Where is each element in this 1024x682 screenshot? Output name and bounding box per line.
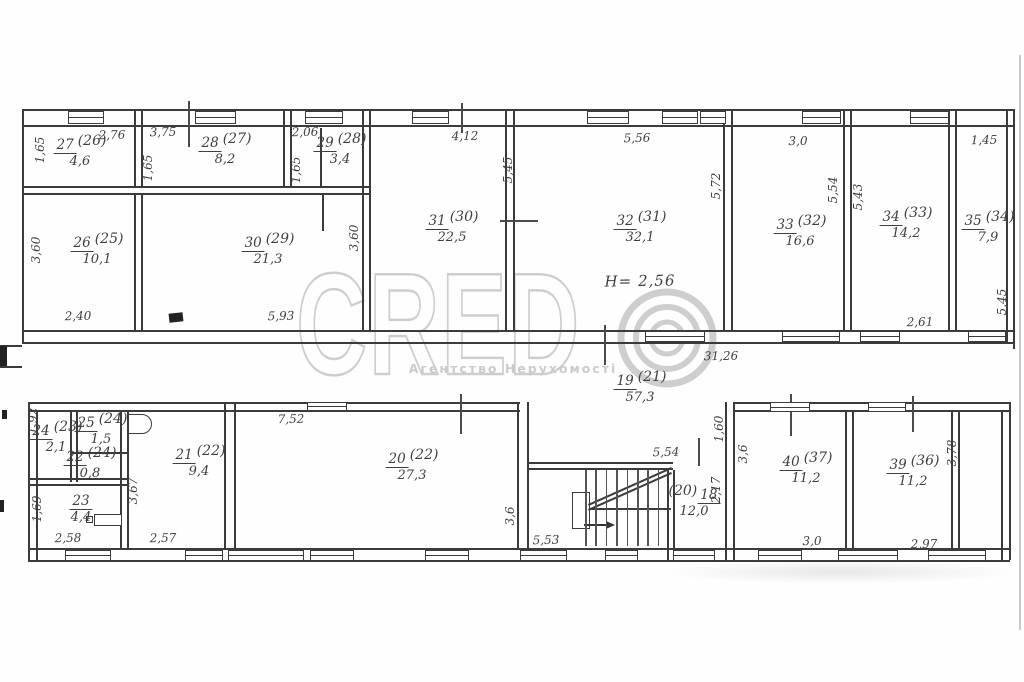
room-label: 29(28)3,4 bbox=[314, 136, 367, 167]
stair-tread bbox=[647, 470, 649, 546]
window-symbol bbox=[605, 550, 638, 561]
dimension-label: 1,69 bbox=[30, 496, 44, 523]
scan-artifact bbox=[0, 346, 7, 366]
wall-segment bbox=[322, 193, 324, 231]
room-number: 26 bbox=[71, 236, 94, 252]
room-label: 27(26)4,6 bbox=[54, 138, 107, 169]
watermark-subtitle: Агентство Нерухомості bbox=[408, 361, 618, 376]
room-old-number: (30) bbox=[450, 210, 479, 225]
dimension-label: 4,12 bbox=[452, 129, 479, 143]
room-number: 27 bbox=[54, 138, 77, 154]
dimension-label: 3,60 bbox=[29, 237, 43, 264]
wall-segment bbox=[22, 342, 1014, 344]
dimension-label: 2,06 bbox=[292, 125, 319, 139]
stair-diagonal bbox=[588, 472, 672, 511]
dimension-label: 3,60 bbox=[347, 225, 361, 252]
stair-tread bbox=[616, 470, 618, 546]
tick-mark bbox=[912, 396, 914, 432]
wall-segment bbox=[22, 186, 370, 188]
dimension-label: 3,0 bbox=[788, 134, 807, 148]
room-label: 26(25)10,1 bbox=[71, 236, 124, 267]
room-label: 30(29)21,3 bbox=[242, 236, 295, 267]
dimension-label: 1,92 bbox=[26, 408, 40, 435]
window-symbol bbox=[928, 550, 986, 561]
wall-segment bbox=[852, 410, 854, 550]
room-area: 16,6 bbox=[774, 235, 827, 249]
room-area: 11,2 bbox=[887, 475, 940, 489]
dimension-label: 1,65 bbox=[289, 157, 303, 184]
room-label: 32(31)32,1 bbox=[614, 214, 667, 245]
dimension-label: 5,54 bbox=[826, 177, 840, 204]
dimension-label: 2,40 bbox=[65, 309, 92, 323]
scan-edge-line bbox=[1019, 55, 1021, 630]
window-symbol bbox=[868, 402, 906, 412]
room-old-number: (21) bbox=[638, 370, 667, 385]
stair-tread bbox=[595, 470, 597, 546]
room-area: 27,3 bbox=[386, 469, 439, 483]
window-symbol bbox=[305, 111, 343, 124]
room-number: 22 bbox=[64, 450, 87, 466]
room-old-number: (34) bbox=[986, 210, 1015, 225]
scan-smudge bbox=[660, 560, 1020, 584]
dimension-label: 5,43 bbox=[851, 184, 865, 211]
room-number: 28 bbox=[199, 136, 222, 152]
window-symbol bbox=[65, 550, 111, 561]
room-area: 11,2 bbox=[780, 472, 833, 486]
room-number: 20 bbox=[386, 452, 409, 468]
room-label: 40(37)11,2 bbox=[780, 455, 833, 486]
room-old-number: (27) bbox=[223, 132, 252, 147]
room-area: 0,8 bbox=[64, 467, 117, 481]
room-area: 4,4 bbox=[69, 511, 92, 525]
wall-segment bbox=[141, 193, 143, 332]
room-label: 31(30)22,5 bbox=[426, 214, 479, 245]
room-number: 19 bbox=[614, 374, 637, 390]
room-old-number: (20) bbox=[669, 484, 698, 499]
window-symbol bbox=[185, 550, 223, 561]
room-label: 28(27)8,2 bbox=[199, 136, 252, 167]
window-symbol bbox=[228, 550, 304, 561]
wall-segment bbox=[234, 402, 236, 548]
scan-artifact bbox=[0, 500, 4, 512]
dimension-label: 5,93 bbox=[268, 309, 295, 323]
stair-tread bbox=[627, 470, 629, 546]
dimension-label: 5,54 bbox=[653, 445, 680, 459]
wall-segment bbox=[955, 109, 957, 332]
room-label: 39(36)11,2 bbox=[887, 458, 940, 489]
room-area: 10,1 bbox=[71, 253, 124, 267]
room-label: 19(21)57,3 bbox=[614, 374, 667, 405]
window-symbol bbox=[195, 111, 236, 124]
tick-mark bbox=[500, 220, 538, 222]
wall-segment bbox=[134, 109, 136, 188]
wall-segment bbox=[731, 109, 733, 332]
stair-tread bbox=[658, 470, 660, 546]
room-area: 12,0 bbox=[668, 505, 721, 519]
window-symbol bbox=[425, 550, 469, 561]
wall-segment bbox=[517, 402, 519, 548]
wall-segment bbox=[30, 484, 128, 486]
room-number: 23 bbox=[69, 494, 92, 510]
wall-segment bbox=[369, 109, 371, 332]
tick-mark bbox=[698, 438, 700, 466]
wall-segment bbox=[22, 109, 24, 344]
scan-artifact bbox=[2, 410, 7, 419]
room-area: 22,5 bbox=[426, 231, 479, 245]
dimension-label: 3,78 bbox=[945, 440, 959, 467]
room-old-number: (36) bbox=[911, 454, 940, 469]
dimension-label: 3,6 bbox=[503, 506, 517, 525]
room-label: 33(32)16,6 bbox=[774, 218, 827, 249]
wall-segment bbox=[22, 109, 1014, 111]
dimension-label: 3,0 bbox=[802, 534, 821, 548]
room-old-number: (33) bbox=[904, 206, 933, 221]
room-old-number: (31) bbox=[638, 210, 667, 225]
wall-segment bbox=[527, 462, 673, 464]
wall-segment bbox=[28, 402, 520, 404]
dimension-label: 7,52 bbox=[278, 412, 305, 426]
wall-segment bbox=[283, 109, 285, 188]
room-number: 21 bbox=[173, 448, 196, 464]
window-symbol bbox=[520, 550, 567, 561]
tick-mark bbox=[604, 325, 606, 365]
wall-segment bbox=[0, 366, 22, 368]
room-number: 25 bbox=[75, 416, 98, 432]
dimension-label: 5,56 bbox=[624, 131, 651, 145]
dimension-label: 5,53 bbox=[533, 533, 560, 547]
dimension-label: 1,65 bbox=[33, 137, 47, 164]
dimension-label: 1,60 bbox=[712, 416, 726, 443]
room-area: 32,1 bbox=[614, 231, 667, 245]
room-label: 21(22)9,4 bbox=[173, 448, 226, 479]
dimension-label: 2,97 bbox=[911, 537, 938, 551]
room-number: 40 bbox=[780, 455, 803, 471]
tick-mark bbox=[460, 394, 462, 434]
tick-mark bbox=[790, 394, 792, 436]
room-old-number: (37) bbox=[804, 451, 833, 466]
room-old-number: (24) bbox=[88, 446, 117, 461]
room-number: 32 bbox=[614, 214, 637, 230]
room-number: 34 bbox=[880, 210, 903, 226]
stair-tread bbox=[606, 470, 608, 546]
dimension-label: 3,6 bbox=[736, 444, 750, 463]
room-area: 7,9 bbox=[962, 231, 1015, 245]
dimension-label: 5,45 bbox=[501, 157, 515, 184]
room-label: 35(34)7,9 bbox=[962, 214, 1015, 245]
dimension-label: 2,76 bbox=[99, 128, 126, 142]
wall-segment bbox=[958, 410, 960, 550]
room-number: 35 bbox=[962, 214, 985, 230]
room-label: 22(24)0,8 bbox=[64, 450, 117, 481]
room-area: 3,4 bbox=[314, 153, 367, 167]
window-symbol bbox=[700, 111, 726, 124]
room-area: 9,4 bbox=[173, 465, 226, 479]
toilet-fixture bbox=[128, 414, 152, 434]
sink-fixture bbox=[94, 514, 122, 526]
floor-plan-scan: CRED Агентство Нерухомості 27(26)4,628(2… bbox=[0, 0, 1024, 682]
dimension-label: 1,45 bbox=[971, 133, 998, 147]
room-number: 31 bbox=[426, 214, 449, 230]
stair-diagonal bbox=[588, 467, 672, 506]
dimension-label: 2,58 bbox=[55, 531, 82, 545]
window-symbol bbox=[782, 331, 840, 342]
room-number: 33 bbox=[774, 218, 797, 234]
room-label: 234,4 bbox=[69, 494, 92, 525]
dimension-label: 5,45 bbox=[995, 289, 1009, 316]
room-old-number: (32) bbox=[798, 214, 827, 229]
room-area: 21,3 bbox=[242, 253, 295, 267]
wall-segment bbox=[733, 402, 735, 560]
wall-segment bbox=[850, 109, 852, 332]
wall-segment bbox=[1001, 410, 1003, 560]
wall-segment bbox=[1009, 402, 1011, 560]
wall-segment bbox=[527, 402, 529, 548]
room-area: 8,2 bbox=[199, 153, 252, 167]
wall-segment bbox=[723, 109, 725, 332]
window-symbol bbox=[310, 550, 354, 561]
tick-mark bbox=[188, 101, 190, 147]
dimension-label: 31,26 bbox=[704, 349, 739, 364]
wall-segment bbox=[951, 410, 953, 550]
window-symbol bbox=[758, 550, 802, 561]
wall-segment bbox=[845, 410, 847, 550]
dimension-label: 3,67 bbox=[126, 478, 140, 505]
window-symbol bbox=[860, 331, 900, 342]
window-symbol bbox=[645, 331, 705, 342]
room-old-number: (22) bbox=[410, 448, 439, 463]
stair-arrow-head bbox=[606, 521, 615, 529]
window-symbol bbox=[673, 550, 715, 561]
dimension-label: 3,75 bbox=[150, 125, 177, 139]
room-label: 20(22)27,3 bbox=[386, 452, 439, 483]
wall-segment bbox=[843, 109, 845, 332]
dimension-label: 5,72 bbox=[709, 173, 723, 200]
wall-segment bbox=[948, 109, 950, 332]
dimension-label: 2,61 bbox=[907, 315, 934, 329]
window-symbol bbox=[587, 111, 629, 124]
room-old-number: (24) bbox=[99, 412, 128, 427]
window-symbol bbox=[968, 331, 1006, 342]
window-symbol bbox=[802, 111, 841, 124]
door-mark bbox=[169, 312, 184, 322]
room-old-number: (28) bbox=[338, 132, 367, 147]
room-area: 14,2 bbox=[880, 227, 933, 241]
stair-tread bbox=[637, 470, 639, 546]
wall-segment bbox=[22, 193, 370, 195]
room-number: 30 bbox=[242, 236, 265, 252]
room-label: 34(33)14,2 bbox=[880, 210, 933, 241]
height-note: Н= 2,56 bbox=[604, 271, 675, 290]
window-symbol bbox=[68, 111, 104, 124]
room-old-number: (22) bbox=[197, 444, 226, 459]
dimension-label: 1,65 bbox=[141, 155, 155, 182]
window-symbol bbox=[662, 111, 698, 124]
window-symbol bbox=[412, 111, 449, 124]
room-label: 25(24)1,5 bbox=[75, 416, 128, 447]
window-symbol bbox=[910, 111, 949, 124]
stair-tread bbox=[585, 470, 587, 546]
room-old-number: (29) bbox=[266, 232, 295, 247]
wall-segment bbox=[134, 193, 136, 332]
room-old-number: (25) bbox=[95, 232, 124, 247]
dimension-label: 2,17 bbox=[709, 477, 723, 504]
room-area: 4,6 bbox=[54, 155, 107, 169]
window-symbol bbox=[770, 402, 810, 412]
wall-segment bbox=[527, 468, 673, 470]
window-symbol bbox=[307, 402, 347, 411]
room-number: 39 bbox=[887, 458, 910, 474]
room-area: 57,3 bbox=[614, 391, 667, 405]
dimension-label: 2,57 bbox=[150, 531, 177, 545]
